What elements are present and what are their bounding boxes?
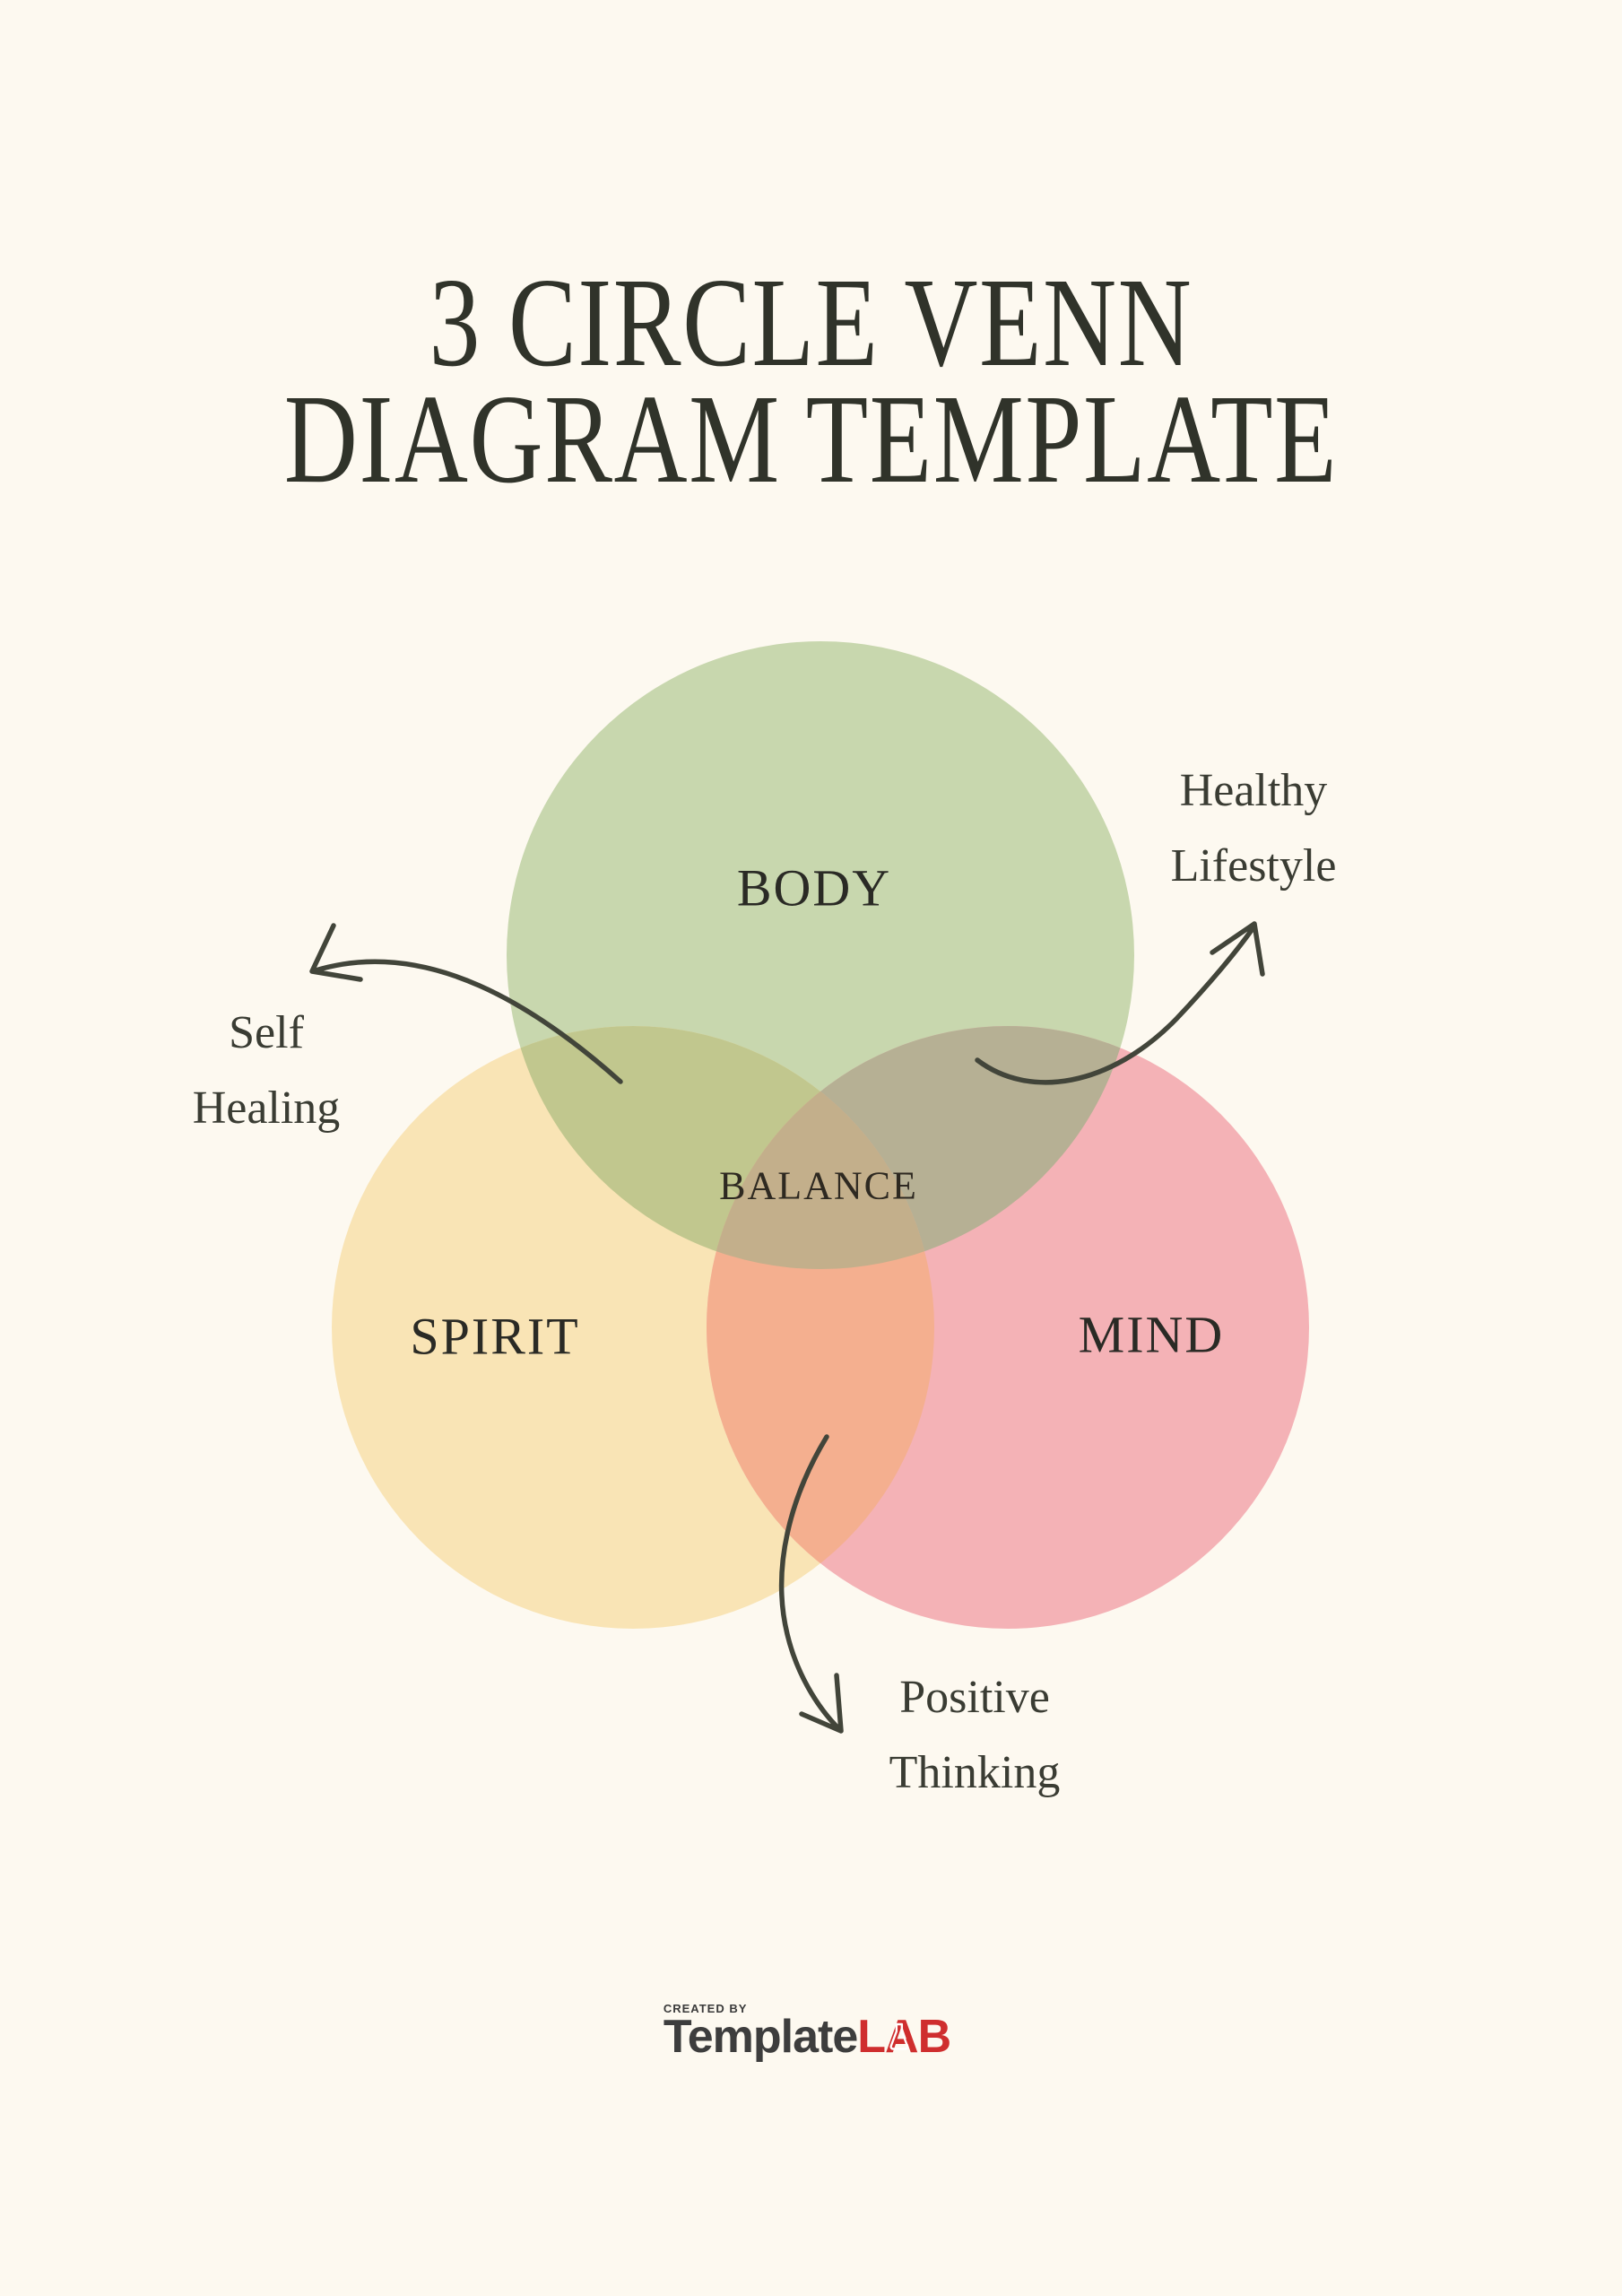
self-healing-annotation: Self Healing [193,996,341,1146]
brand-wordmark: TemplateLAB [664,2015,950,2058]
balance-label: BALANCE [719,1163,918,1209]
spirit-label: SPIRIT [410,1307,579,1367]
self-healing-line1: Self [193,996,341,1071]
healthy-lifestyle-annotation: Healthy Lifestyle [1171,753,1337,904]
poster-page: 3 CIRCLE VENN DIAGRAM TEMPLATE [0,0,1622,2296]
body-label: BODY [737,858,891,918]
positive-thinking-annotation: Positive Thinking [889,1660,1061,1811]
brand-lab-text: LAB [857,2015,950,2058]
footer-logo: CREATED BY TemplateLAB [664,2002,950,2058]
healthy-lifestyle-line1: Healthy [1171,753,1337,829]
healthy-lifestyle-line2: Lifestyle [1171,829,1337,904]
positive-thinking-line2: Thinking [889,1735,1061,1811]
mind-label: MIND [1079,1305,1225,1365]
self-healing-line2: Healing [193,1071,341,1146]
positive-thinking-line1: Positive [889,1660,1061,1735]
brand-template-text: Template [664,2011,857,2063]
venn-diagram [0,0,1622,2296]
